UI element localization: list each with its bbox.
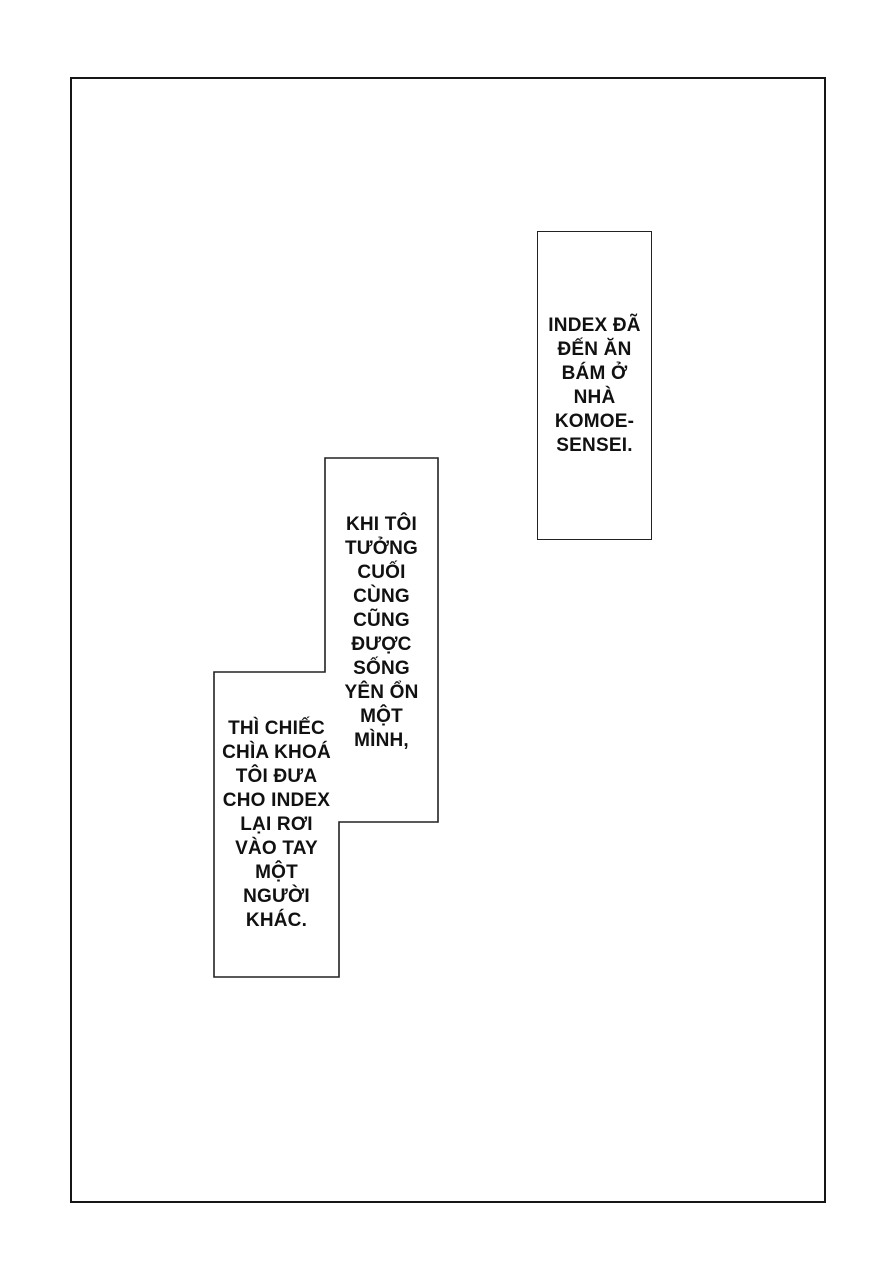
speech-bubble-komoe: INDEX ĐÃ ĐẾN ĂN BÁM Ở NHÀ KOMOE- SENSEI. bbox=[537, 231, 652, 540]
speech-bubble-alone: KHI TÔI TƯỞNG CUỐI CÙNG CŨNG ĐƯỢC SỐNG Y… bbox=[325, 458, 438, 822]
manga-page: INDEX ĐÃ ĐẾN ĂN BÁM Ở NHÀ KOMOE- SENSEI.… bbox=[0, 0, 895, 1280]
speech-bubble-komoe-text: INDEX ĐÃ ĐẾN ĂN BÁM Ở NHÀ KOMOE- SENSEI. bbox=[548, 314, 640, 458]
speech-bubble-key-text: THÌ CHIẾC CHÌA KHOÁ TÔI ĐƯA CHO INDEX LẠ… bbox=[222, 717, 331, 933]
speech-bubble-key: THÌ CHIẾC CHÌA KHOÁ TÔI ĐƯA CHO INDEX LẠ… bbox=[214, 672, 339, 977]
panel-frame bbox=[70, 77, 826, 1203]
speech-bubble-alone-text: KHI TÔI TƯỞNG CUỐI CÙNG CŨNG ĐƯỢC SỐNG Y… bbox=[344, 513, 418, 753]
